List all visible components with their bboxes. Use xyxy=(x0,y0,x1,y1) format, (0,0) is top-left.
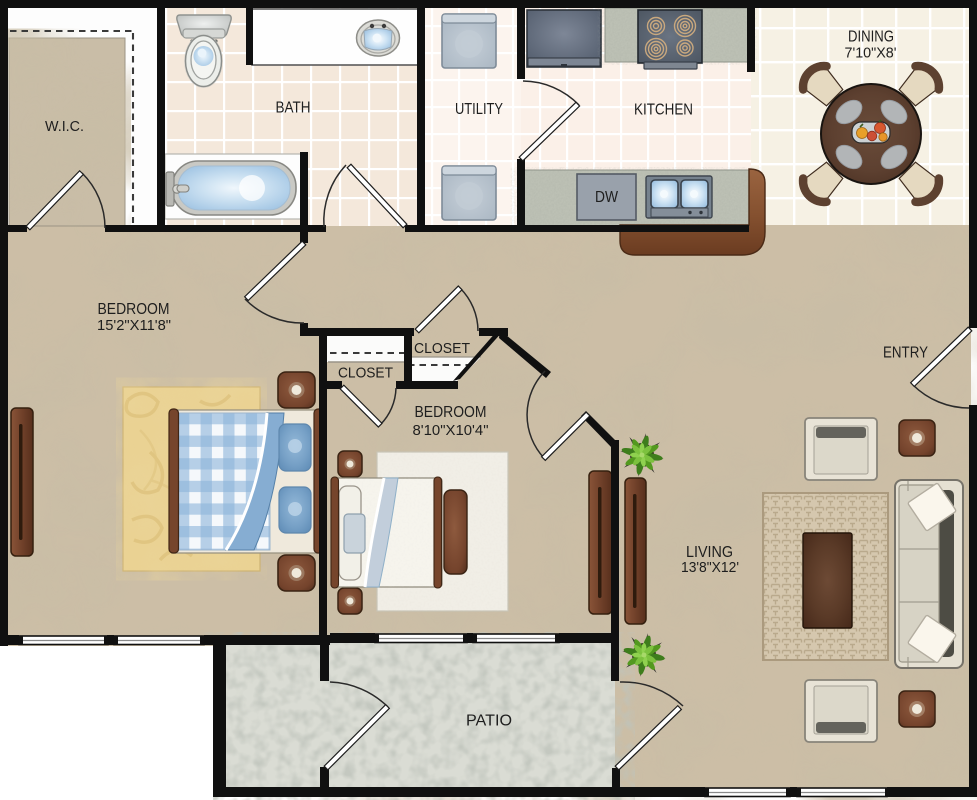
svg-text:KITCHEN: KITCHEN xyxy=(634,102,693,119)
svg-text:PATIO: PATIO xyxy=(466,713,512,730)
svg-text:8'10"X10'4": 8'10"X10'4" xyxy=(413,423,489,439)
svg-text:CLOSET: CLOSET xyxy=(338,365,393,382)
svg-text:BATH: BATH xyxy=(276,100,311,117)
svg-text:13'8"X12': 13'8"X12' xyxy=(681,560,739,576)
svg-text:DINING: DINING xyxy=(848,29,894,46)
svg-text:W.I.C.: W.I.C. xyxy=(45,118,84,135)
svg-text:15'2"X11'8": 15'2"X11'8" xyxy=(97,318,171,334)
svg-text:BEDROOM: BEDROOM xyxy=(415,404,487,421)
svg-text:7'10"X8': 7'10"X8' xyxy=(845,46,897,62)
svg-text:ENTRY: ENTRY xyxy=(883,345,928,362)
svg-text:DW: DW xyxy=(595,189,619,206)
svg-text:BEDROOM: BEDROOM xyxy=(98,301,170,318)
svg-text:UTILITY: UTILITY xyxy=(455,101,503,118)
svg-text:CLOSET: CLOSET xyxy=(414,340,470,357)
svg-text:LIVING: LIVING xyxy=(686,544,733,561)
